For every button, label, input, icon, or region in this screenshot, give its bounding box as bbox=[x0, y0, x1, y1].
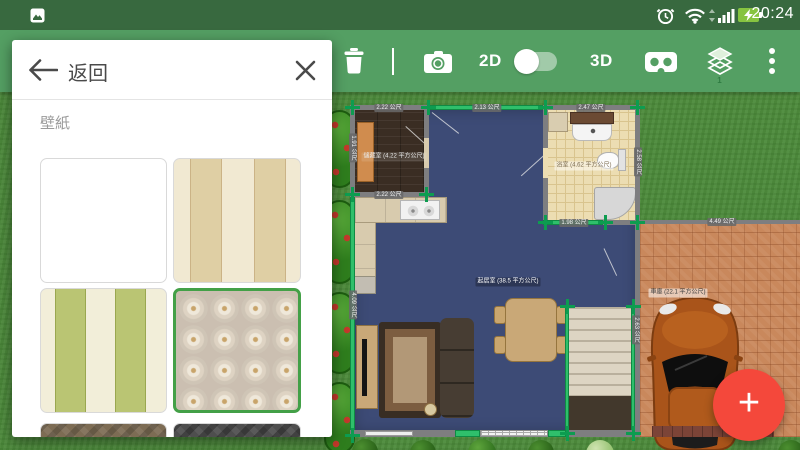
mode-2d-label[interactable]: 2D bbox=[479, 51, 502, 71]
wall-corner-handle[interactable] bbox=[345, 187, 360, 202]
wallpaper-panel: 返回 壁紙 bbox=[12, 40, 332, 437]
wall-corner-handle[interactable] bbox=[630, 215, 645, 230]
dimension-label: 2.63 公尺 bbox=[632, 315, 640, 344]
2d-3d-toggle[interactable] bbox=[517, 52, 557, 71]
status-bar: 20:24 bbox=[0, 0, 800, 30]
network-activity-arrows-icon bbox=[708, 9, 716, 22]
section-label-wallpaper: 壁紙 bbox=[40, 112, 70, 133]
dimension-label: 2.47 公尺 bbox=[576, 104, 605, 112]
room-label-storage: 儲藏室 (4.22 平方公尺) bbox=[361, 153, 426, 162]
signal-strength-icon bbox=[718, 8, 735, 23]
sink-counter[interactable] bbox=[570, 112, 614, 124]
dimension-label: 2.22 公尺 bbox=[374, 104, 403, 112]
layers-icon[interactable] bbox=[707, 47, 733, 75]
wall-corner-handle[interactable] bbox=[626, 299, 641, 314]
washing-machine[interactable] bbox=[548, 112, 568, 132]
tree[interactable] bbox=[410, 440, 436, 450]
wall-corner-handle[interactable] bbox=[419, 187, 434, 202]
panel-back-label[interactable]: 返回 bbox=[68, 57, 108, 86]
wall-selected[interactable] bbox=[455, 430, 480, 437]
tv-screen[interactable] bbox=[362, 339, 367, 396]
window-paned[interactable] bbox=[480, 430, 548, 437]
kitchen-stove[interactable] bbox=[400, 200, 440, 220]
wall-corner-handle[interactable] bbox=[421, 100, 436, 115]
room-label-living: 起居室 (38.5 平方公尺) bbox=[475, 278, 540, 287]
alarm-icon bbox=[656, 6, 675, 25]
close-icon[interactable] bbox=[295, 60, 316, 81]
kitchen-appliance[interactable] bbox=[354, 276, 376, 294]
tv-cabinet[interactable] bbox=[356, 325, 378, 409]
dimension-label: 1.98 公尺 bbox=[559, 219, 588, 227]
overflow-menu-icon[interactable] bbox=[768, 47, 776, 75]
sink-basin[interactable] bbox=[572, 124, 612, 141]
wall-corner-handle[interactable] bbox=[630, 100, 645, 115]
wallpaper-swatch-plain-white[interactable] bbox=[40, 158, 167, 283]
room-label-bathroom: 浴室 (4.62 平方公尺) bbox=[554, 162, 613, 171]
corner-sofa[interactable] bbox=[440, 318, 474, 418]
screenshot-notification-icon bbox=[30, 8, 45, 23]
mode-3d-label[interactable]: 3D bbox=[590, 51, 613, 71]
toolbar-divider bbox=[392, 48, 394, 75]
add-fab-button[interactable]: + bbox=[713, 369, 785, 441]
dimension-label: 2.58 公尺 bbox=[634, 147, 642, 176]
dimension-label: 4.09 公尺 bbox=[349, 290, 357, 319]
wall-selected[interactable] bbox=[565, 305, 569, 437]
dining-table[interactable] bbox=[505, 298, 557, 362]
wall-corner-handle[interactable] bbox=[538, 100, 553, 115]
planner-app-screen: 2.22 公尺 2.13 公尺 2.47 公尺 2.22 公尺 4.49 公尺 … bbox=[0, 0, 800, 450]
wall-corner-handle[interactable] bbox=[538, 215, 553, 230]
wall-corner-handle[interactable] bbox=[626, 426, 641, 441]
wifi-icon bbox=[684, 7, 706, 24]
wallpaper-swatch-brown-damask[interactable] bbox=[40, 423, 167, 437]
dimension-label: 2.22 公尺 bbox=[374, 191, 403, 199]
back-arrow-icon[interactable] bbox=[28, 59, 58, 81]
side-table[interactable] bbox=[424, 403, 437, 416]
wall-corner-handle[interactable] bbox=[345, 100, 360, 115]
camera-icon[interactable] bbox=[424, 51, 452, 73]
tree[interactable] bbox=[528, 440, 554, 450]
layers-badge: 1 bbox=[713, 74, 726, 87]
toggle-knob[interactable] bbox=[514, 49, 539, 74]
wallpaper-swatch-dark-damask[interactable] bbox=[173, 423, 301, 437]
dimension-label: 2.13 公尺 bbox=[472, 104, 501, 112]
wallpaper-swatch-rosette-circles[interactable] bbox=[173, 288, 301, 413]
wallpaper-swatch-olive-stripes[interactable] bbox=[40, 288, 167, 413]
vr-cardboard-icon[interactable] bbox=[645, 52, 677, 72]
wallpaper-swatch-beige-stripes[interactable] bbox=[173, 158, 301, 283]
panel-header: 返回 bbox=[12, 40, 332, 100]
tree[interactable] bbox=[586, 440, 614, 450]
wall-corner-handle[interactable] bbox=[560, 299, 575, 314]
sofa-bed-blanket bbox=[393, 337, 427, 403]
window[interactable] bbox=[365, 431, 413, 436]
clock-time: 20:24 bbox=[751, 5, 794, 23]
tree[interactable] bbox=[468, 439, 496, 450]
tree[interactable] bbox=[778, 440, 800, 450]
room-label-garage: 車庫 (22.1 平方公尺) bbox=[648, 289, 707, 298]
wall-corner-handle[interactable] bbox=[598, 215, 613, 230]
trash-icon[interactable] bbox=[343, 48, 365, 74]
dimension-label: 1.91 公尺 bbox=[349, 133, 357, 162]
dimension-label: 4.49 公尺 bbox=[707, 218, 736, 226]
wall-corner-handle[interactable] bbox=[560, 426, 575, 441]
toilet-tank bbox=[618, 149, 626, 171]
door-gap bbox=[543, 148, 548, 178]
stairs-landing bbox=[569, 396, 631, 432]
wall-corner-handle[interactable] bbox=[345, 428, 360, 443]
